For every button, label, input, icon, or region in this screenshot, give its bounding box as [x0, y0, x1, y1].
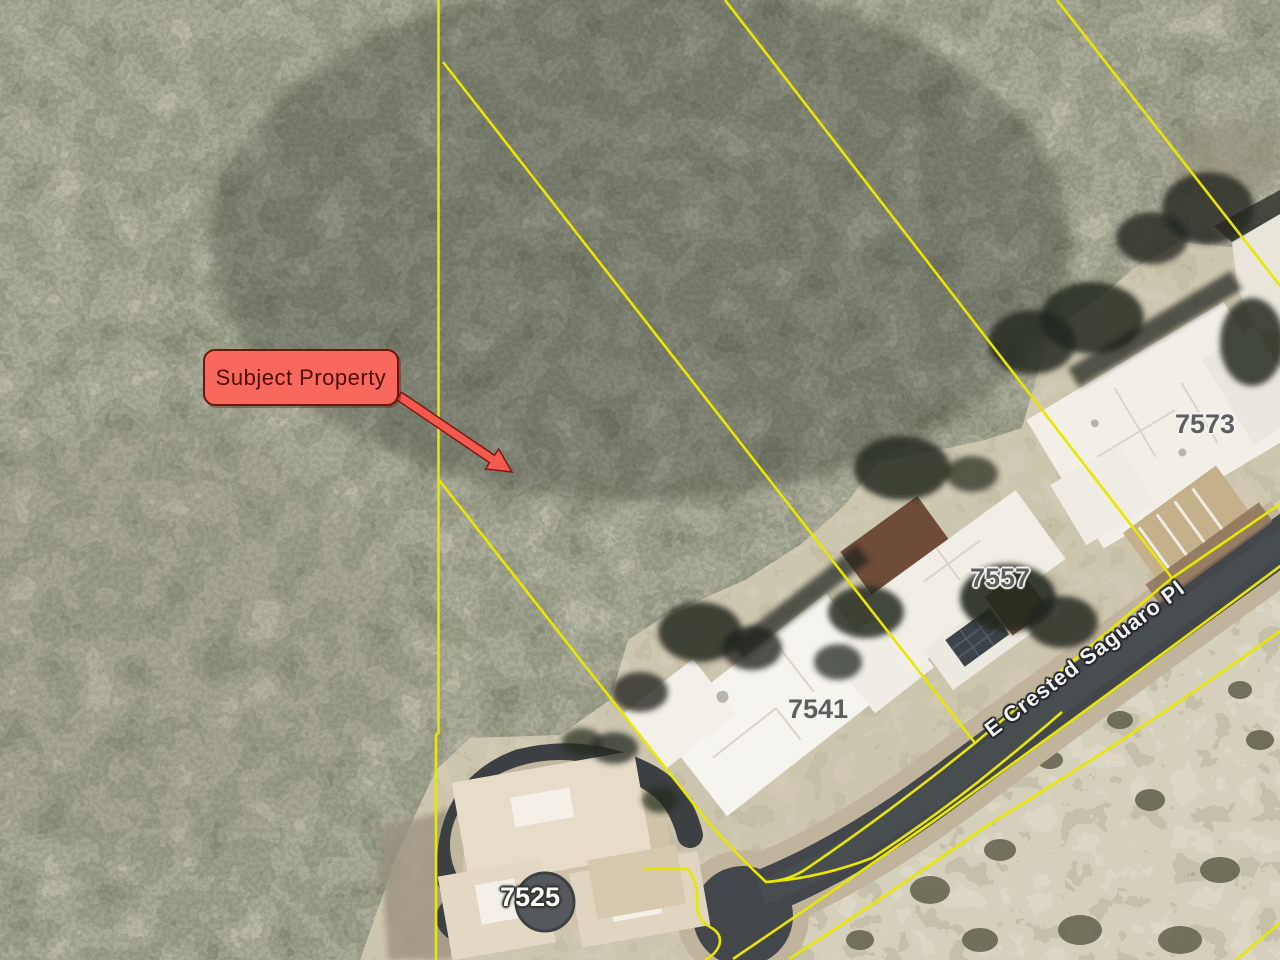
subject-property-label: Subject Property [216, 365, 387, 391]
subject-property-callout: Subject Property [203, 349, 399, 406]
parcel-number-7525: 7525 [480, 882, 580, 913]
parcel-number-7557: 7557 [950, 563, 1050, 594]
aerial-parcel-map[interactable]: Subject Property E Crested Saguaro Pl 75… [0, 0, 1280, 960]
parcel-number-7573: 7573 [1155, 409, 1255, 440]
aerial-imagery [0, 0, 1280, 960]
parcel-number-7541: 7541 [768, 694, 868, 725]
